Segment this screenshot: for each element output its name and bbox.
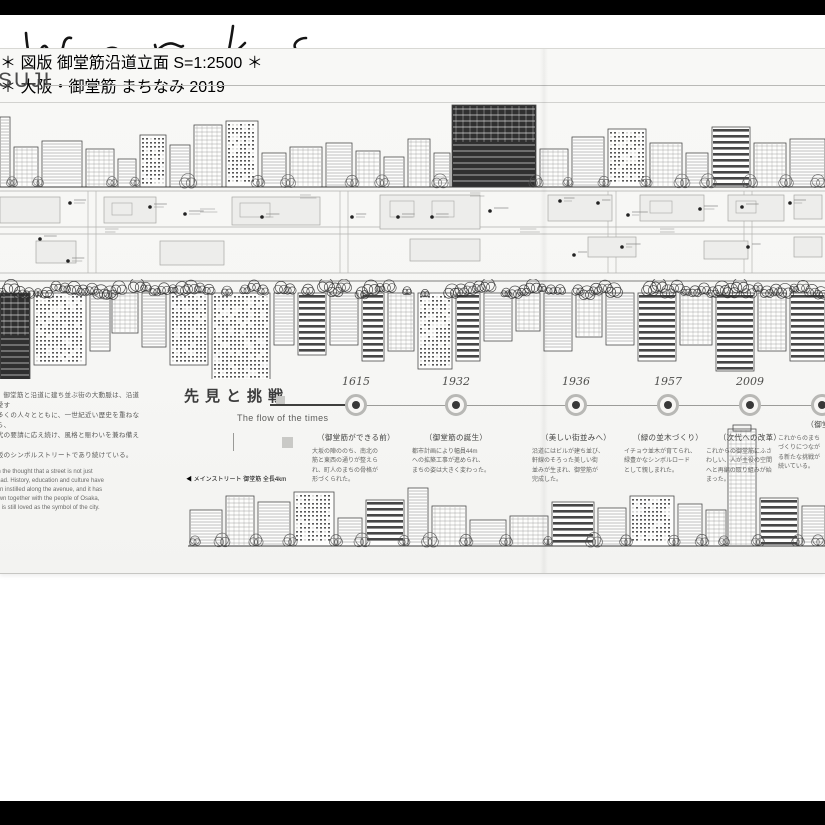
screenshot-canvas: SUJI り、御堂筋と沿道に建ち並ぶ街の大動脈は、沿道を愛する多くの人々とともに… bbox=[0, 0, 825, 825]
caption-left: ＊ 図版 御堂筋沿道立面 S=1:2500 ＊ bbox=[0, 49, 825, 73]
scanned-magazine-spread: SUJI り、御堂筋と沿道に建ち並ぶ街の大動脈は、沿道を愛する多くの人々とともに… bbox=[0, 48, 825, 574]
text-line: り、御堂筋と沿道に建ち並ぶ街の大動脈は、沿道を愛す bbox=[0, 391, 142, 411]
text-line: a road. History, education and culture h… bbox=[0, 477, 142, 486]
timeline-year: 1615 bbox=[309, 375, 403, 388]
text-line: づくりにつなが bbox=[778, 444, 825, 453]
text-line: これからのまち bbox=[778, 435, 825, 444]
text-line: 続いている。 bbox=[778, 463, 825, 472]
timeline-event: 1615（御堂筋ができる前）大坂の陣ののち、南北の筋と東西の通りが整えられ、町人… bbox=[309, 375, 403, 485]
page-fold-shadow bbox=[540, 49, 548, 573]
top-skyline-drawing bbox=[0, 99, 825, 189]
masthead-title-partial: SUJI bbox=[0, 69, 52, 93]
text-line: 緑豊かなシンボルロード bbox=[624, 457, 712, 466]
timeline-label: （御堂筋ができる前） bbox=[309, 432, 403, 443]
timeline-body-text: 都市計画により幅員44mへの拡築工事が進められ、まちの姿は大きく変わった。 bbox=[409, 448, 503, 476]
timeline-event: 1932（御堂筋の誕生）都市計画により幅員44mへの拡築工事が進められ、まちの姿… bbox=[409, 375, 503, 476]
text-line: として親しまれた。 bbox=[624, 467, 712, 476]
text-line: まった。 bbox=[706, 476, 794, 485]
text-line: まちの姿は大きく変わった。 bbox=[412, 467, 500, 476]
text-line: 大阪のシンボルストリートであり続けている。 bbox=[0, 451, 142, 461]
timeline-label: （緑の並木づくり） bbox=[621, 432, 715, 443]
top-black-bar bbox=[0, 0, 825, 15]
text-line: 形づくられた。 bbox=[312, 476, 400, 485]
timeline-event: （御堂…これからのまちづくりにつながる新たな挑戦が続いている。 bbox=[775, 375, 825, 472]
timeline-body-text: 沿道にはビルが建ち並び、軒線のそろった美しい街並みが生まれ、御堂筋が完成した。 bbox=[529, 448, 623, 485]
timeline-event: 1957（緑の並木づくり）イチョウ並木が育てられ、緑豊かなシンボルロードとして親… bbox=[621, 375, 715, 476]
text-line: 沿道にはビルが建ち並び、 bbox=[532, 448, 620, 457]
intro-japanese-paragraph: り、御堂筋と沿道に建ち並ぶ街の大動脈は、沿道を愛する多くの人々とともに、一世紀近… bbox=[0, 391, 142, 461]
timeline-label: （御堂筋の誕生） bbox=[409, 432, 503, 443]
heading-tick-rule bbox=[233, 433, 234, 451]
masthead-rule bbox=[45, 85, 825, 86]
text-line: 大坂の陣ののち、南北の bbox=[312, 448, 400, 457]
timeline-body-text: 大坂の陣ののち、南北の筋と東西の通りが整えられ、町人のまちの骨格が形づくられた。 bbox=[309, 448, 403, 485]
bottom-black-bar bbox=[0, 801, 825, 825]
text-line: 軒線のそろった美しい街 bbox=[532, 457, 620, 466]
text-line: る新たな挑戦が bbox=[778, 454, 825, 463]
timeline-year: 1932 bbox=[409, 375, 503, 388]
text-line: への拡築工事が進められ、 bbox=[412, 457, 500, 466]
street-plan-map-drawing bbox=[0, 187, 825, 281]
legend-note: ◀ メインストリート 御堂筋 全長4km bbox=[186, 474, 286, 483]
text-line: れ、町人のまちの骨格が bbox=[312, 467, 400, 476]
text-line: and is still loved as the symbol of the … bbox=[0, 504, 142, 513]
gray-square-mark-2 bbox=[282, 437, 293, 448]
text-line: る多くの人々とともに、一世紀近い歴史を重ねながら、 bbox=[0, 411, 142, 431]
text-line: been instilled along the avenue, and it … bbox=[0, 486, 142, 495]
hanging-facades-drawing bbox=[0, 279, 825, 379]
timeline-year: 1936 bbox=[529, 375, 623, 388]
timeline-event: 1936（美しい街並みへ）沿道にはビルが建ち並び、軒線のそろった美しい街並みが生… bbox=[529, 375, 623, 485]
text-line: with the thought that a street is not ju… bbox=[0, 468, 142, 477]
timeline-body-text: これからのまちづくりにつながる新たな挑戦が続いている。 bbox=[775, 435, 825, 472]
intro-text-block: り、御堂筋と沿道に建ち並ぶ街の大動脈は、沿道を愛する多くの人々とともに、一世紀近… bbox=[0, 391, 142, 513]
text-line: grown together with the people of Osaka, bbox=[0, 495, 142, 504]
text-line: 都市計画により幅員44m bbox=[412, 448, 500, 457]
intro-english-paragraph: with the thought that a street is not ju… bbox=[0, 468, 142, 513]
timeline-year: 1957 bbox=[621, 375, 715, 388]
text-line: イチョウ並木が育てられ、 bbox=[624, 448, 712, 457]
timeline-label: （美しい街並みへ） bbox=[529, 432, 623, 443]
timeline-label: （御堂… bbox=[775, 419, 825, 430]
text-line: 時代の要請に応え続け、風格と賑わいを兼ね備えた bbox=[0, 431, 142, 451]
text-line: 並みが生まれ、御堂筋が bbox=[532, 467, 620, 476]
section-heading-japanese: 先見と挑戦 bbox=[184, 385, 289, 406]
text-line: 完成した。 bbox=[532, 476, 620, 485]
timeline-body-text: イチョウ並木が育てられ、緑豊かなシンボルロードとして親しまれた。 bbox=[621, 448, 715, 476]
text-line: 筋と東西の通りが整えら bbox=[312, 457, 400, 466]
